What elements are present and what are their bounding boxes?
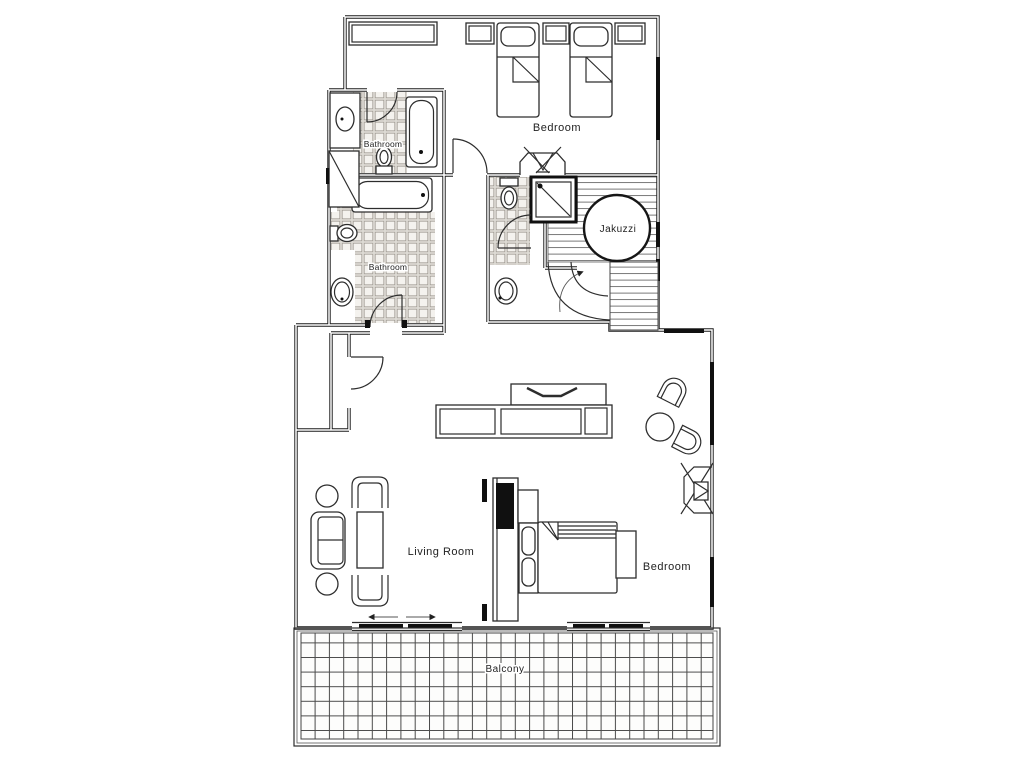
- label-jacuzzi: Jakuzzi: [600, 224, 637, 235]
- label-living-room: Living Room: [408, 546, 475, 558]
- pillow: [574, 27, 608, 46]
- toilet: [376, 147, 392, 174]
- bedroom-lower-furniture: [482, 463, 713, 621]
- round-table: [646, 413, 674, 441]
- tub-chair: [672, 425, 705, 458]
- floorplan-page: Bedroom Bathroom Bathroom Jakuzzi Living…: [0, 0, 1024, 768]
- label-bedroom-top: Bedroom: [533, 122, 581, 134]
- toilet: [500, 178, 518, 209]
- basin-niche: [520, 147, 565, 175]
- floorplan-drawing: Bedroom Bathroom Bathroom Jakuzzi Living…: [0, 0, 1024, 768]
- entry-door: [351, 357, 383, 389]
- bathtub: [406, 97, 437, 167]
- toilet: [330, 225, 357, 242]
- closet: [349, 22, 437, 45]
- side-table: [316, 573, 338, 595]
- twin-bed-1: [497, 23, 539, 117]
- balcony: [294, 628, 720, 746]
- pillow: [522, 558, 535, 586]
- pedestal-sink: [331, 278, 353, 306]
- nightstand: [518, 490, 538, 523]
- tv-partition: [482, 478, 518, 621]
- wall-unit: [681, 463, 713, 514]
- sliding-door-right: [567, 623, 650, 631]
- tv-console: [436, 384, 612, 438]
- dining-set: [646, 374, 705, 458]
- closet: [326, 151, 359, 207]
- coffee-table: [357, 512, 383, 568]
- bathtub: [352, 178, 432, 212]
- armchair: [352, 575, 388, 606]
- sofa-set: [311, 477, 388, 606]
- label-bathroom-upper: Bathroom: [364, 139, 402, 149]
- label-balcony: Balcony: [485, 664, 524, 675]
- nightstand: [615, 23, 645, 44]
- pedestal-sink: [495, 278, 517, 304]
- pillow: [501, 27, 535, 46]
- bedroom-door: [453, 139, 487, 173]
- balcony-tiles: [301, 633, 713, 739]
- twin-bed-2: [570, 23, 612, 117]
- nightstand: [543, 23, 569, 44]
- window-marks: [658, 57, 712, 607]
- stairs: [548, 262, 658, 330]
- shower-stall: [531, 177, 576, 222]
- side-table: [316, 485, 338, 507]
- nightstand: [466, 23, 494, 44]
- stair-direction-arrow: [560, 272, 582, 312]
- double-bed: [518, 490, 636, 593]
- label-bedroom-lower: Bedroom: [643, 561, 691, 573]
- vanity-sink: [330, 93, 360, 148]
- pillow: [522, 527, 535, 555]
- tv: [496, 483, 514, 529]
- armchair: [352, 477, 388, 508]
- tub-chair: [657, 374, 690, 407]
- bench: [616, 531, 636, 578]
- label-bathroom-lower: Bathroom: [369, 262, 407, 272]
